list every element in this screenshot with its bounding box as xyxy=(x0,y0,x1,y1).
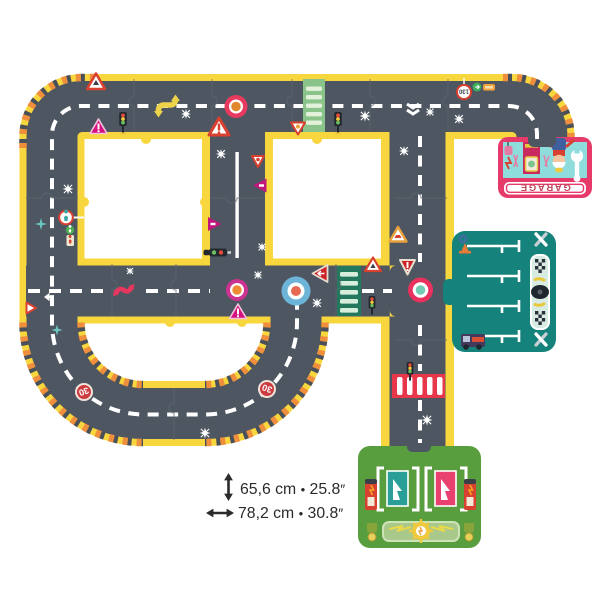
svg-text:GARAGE: GARAGE xyxy=(519,182,571,193)
svg-text:78,2 cm • 30.8″: 78,2 cm • 30.8″ xyxy=(238,505,343,522)
svg-text:65,6 cm • 25.8″: 65,6 cm • 25.8″ xyxy=(240,481,345,498)
svg-text:130: 130 xyxy=(458,87,469,93)
